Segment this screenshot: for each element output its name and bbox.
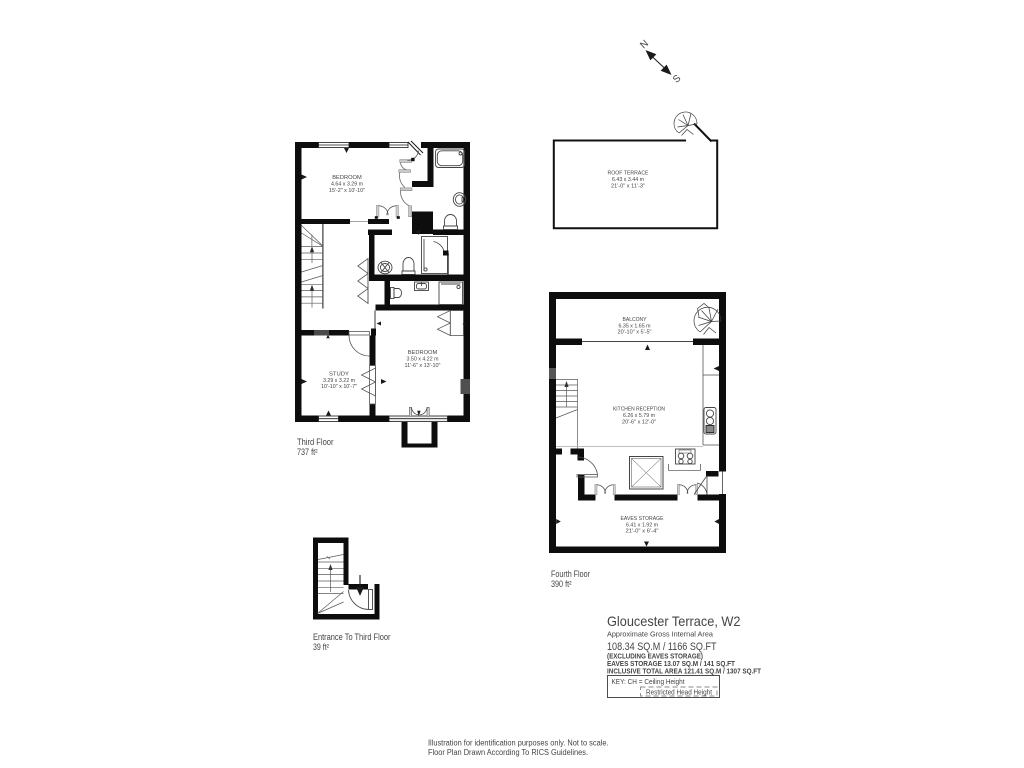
svg-text:3.29 x 3.22 m: 3.29 x 3.22 m bbox=[323, 378, 355, 384]
svg-text:KITCHEN RECEPTION: KITCHEN RECEPTION bbox=[613, 407, 665, 413]
svg-text:BEDROOM: BEDROOM bbox=[332, 175, 362, 181]
svg-text:21'-0" x 11'-3": 21'-0" x 11'-3" bbox=[611, 183, 645, 189]
svg-text:6.35 x 1.65 m: 6.35 x 1.65 m bbox=[619, 323, 651, 329]
svg-text:3.50 x 4.22 m: 3.50 x 4.22 m bbox=[407, 357, 439, 363]
svg-text:INCLUSIVE TOTAL AREA 121.41 SQ: INCLUSIVE TOTAL AREA 121.41 SQ.M / 1307 … bbox=[607, 666, 762, 675]
svg-text:KEY: CH = Ceiling Height: KEY: CH = Ceiling Height bbox=[612, 679, 685, 686]
svg-text:390 ft²: 390 ft² bbox=[551, 579, 572, 589]
svg-text:Illustration for identificatio: Illustration for identification purposes… bbox=[428, 738, 609, 747]
svg-text:STUDY: STUDY bbox=[329, 371, 349, 377]
svg-text:BEDROOM: BEDROOM bbox=[408, 350, 438, 356]
svg-text:20'-6" x 12'-0": 20'-6" x 12'-0" bbox=[622, 419, 656, 425]
svg-text:Fourth Floor: Fourth Floor bbox=[551, 569, 590, 579]
svg-text:21'-0" x 6'-4": 21'-0" x 6'-4" bbox=[626, 529, 659, 535]
svg-text:10'-10" x 10'-7": 10'-10" x 10'-7" bbox=[321, 384, 357, 390]
svg-text:Restricted Head Height: Restricted Head Height bbox=[646, 690, 712, 697]
svg-text:15'-2" x 10'-10": 15'-2" x 10'-10" bbox=[329, 188, 365, 194]
svg-text:11'-6" x 13'-10": 11'-6" x 13'-10" bbox=[405, 363, 441, 369]
svg-text:6.26 x 5.79 m: 6.26 x 5.79 m bbox=[623, 413, 655, 419]
svg-text:Entrance To Third Floor: Entrance To Third Floor bbox=[313, 632, 391, 642]
svg-text:20'-10" x 5'-5": 20'-10" x 5'-5" bbox=[618, 330, 652, 336]
svg-text:Third Floor: Third Floor bbox=[297, 437, 334, 447]
svg-text:Floor Plan Drawn According To: Floor Plan Drawn According To RICS Guide… bbox=[428, 748, 588, 757]
svg-text:EAVES STORAGE: EAVES STORAGE bbox=[621, 516, 664, 522]
svg-text:Approximate Gross Internal Are: Approximate Gross Internal Area bbox=[607, 629, 714, 638]
svg-text:39 ft²: 39 ft² bbox=[313, 642, 329, 652]
svg-text:4.64 x 3.29 m: 4.64 x 3.29 m bbox=[331, 182, 363, 188]
svg-text:6.43 x 3.44 m: 6.43 x 3.44 m bbox=[612, 177, 644, 183]
svg-text:ROOF TERRACE: ROOF TERRACE bbox=[608, 171, 649, 177]
svg-text:BALCONY: BALCONY bbox=[623, 317, 647, 323]
svg-text:Gloucester Terrace, W2: Gloucester Terrace, W2 bbox=[607, 613, 741, 629]
svg-text:6.41 x 1.92 m: 6.41 x 1.92 m bbox=[626, 522, 658, 528]
svg-text:737 ft²: 737 ft² bbox=[297, 447, 318, 457]
